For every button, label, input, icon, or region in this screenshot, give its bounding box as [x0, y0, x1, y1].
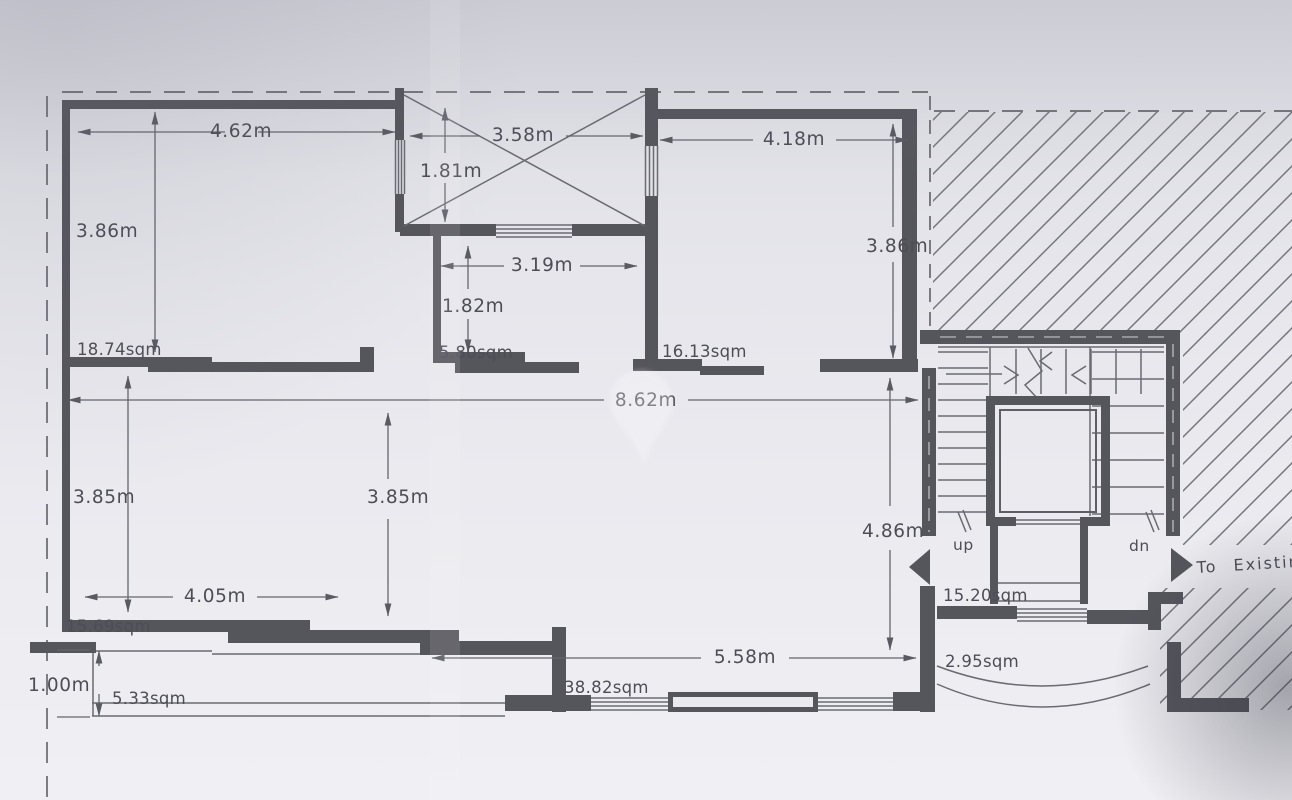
floor-plan-photo: 4.62m 3.86m 18.74sqm 3.58m 1.81m 3.19m 1…	[0, 0, 1292, 800]
floor-plan-drawing: 4.62m 3.86m 18.74sqm 3.58m 1.81m 3.19m 1…	[0, 0, 1292, 800]
photo-artifacts	[0, 0, 1292, 800]
